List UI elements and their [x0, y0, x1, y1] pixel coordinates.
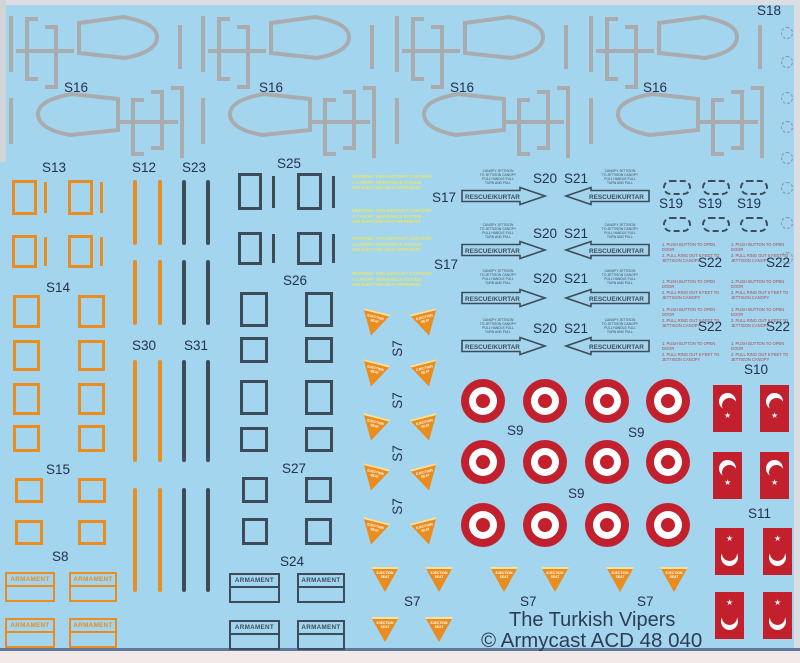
- triangle-text: EJECTIONSEAT: [371, 617, 399, 630]
- s10-label: S10: [744, 362, 768, 377]
- star-icon: ★: [771, 412, 778, 420]
- s13-frame-rect: [68, 235, 93, 268]
- star-icon: ★: [771, 479, 778, 487]
- triangle-text: EJECTIONSEAT: [360, 308, 390, 327]
- armament-box-label: ARMAMENT: [299, 575, 343, 588]
- turkish-flag-s10: ★: [760, 452, 789, 499]
- canopy-instruction-line: 1. PUSH BUTTON TO OPEN DOOR: [662, 307, 720, 318]
- jettison-stencil-block: CANOPY JETTISONTO JETTISON CANOPYPULL HA…: [596, 224, 644, 240]
- s7-label: S7: [637, 594, 654, 609]
- s7-label: S7: [390, 340, 405, 357]
- s25-frame-rect: [297, 173, 322, 210]
- walkway-stripe-dark: [206, 488, 210, 592]
- walkway-stripe-dark: [182, 260, 186, 325]
- canopy-instruction-block: 1. PUSH BUTTON TO OPEN DOOR2. PULL RING …: [662, 242, 720, 263]
- s18-dashed-circle: [781, 182, 793, 194]
- s15-frame-rect: [15, 478, 43, 503]
- roundel-white-ring: [469, 448, 497, 476]
- s18-dashed-circle: [781, 56, 793, 68]
- s15-label: S15: [46, 462, 70, 477]
- s30-label: S30: [132, 338, 156, 353]
- canopy-instruction-line: 1. PUSH BUTTON TO OPEN DOOR: [731, 307, 789, 318]
- walkway-stripe-orange: [158, 180, 162, 245]
- s9-label: S9: [507, 423, 524, 438]
- s7-label: S7: [520, 594, 537, 609]
- canopy-instruction-block: 1. PUSH BUTTON TO OPEN DOOR2. PULL RING …: [662, 279, 720, 300]
- s26-frame-rect: [305, 427, 333, 452]
- s9-label: S9: [568, 486, 585, 501]
- s24-label: S24: [280, 554, 304, 569]
- s26-frame-rect: [240, 380, 268, 415]
- triangle-text: EJECTIONSEAT: [425, 567, 453, 580]
- roundel-white-ring: [531, 448, 559, 476]
- roundel-center-dot: [661, 394, 675, 408]
- armament-box-dark: ARMAMENT: [229, 620, 280, 650]
- seal-bracket: [519, 100, 530, 154]
- triangle-text: EJECTIONSEAT: [371, 567, 399, 580]
- triangle-text: EJECTIONSEAT: [409, 308, 439, 327]
- turkish-flag-s11: ★: [715, 528, 744, 575]
- triangle-text-line: SEAT: [425, 625, 453, 629]
- rescue-arrow-text: RESCUE/KURTAR: [465, 344, 520, 351]
- roundel-white-ring: [593, 511, 621, 539]
- s13-label: S13: [42, 160, 66, 175]
- canopy-outline: [79, 17, 157, 58]
- s25-frame-bar: [332, 176, 335, 208]
- s14-frame-rect: [13, 340, 40, 371]
- canopy-instruction-line: 1. PUSH BUTTON TO OPEN DOOR: [731, 279, 789, 290]
- s14-frame-rect: [78, 340, 105, 371]
- s19-label: S19: [659, 196, 683, 211]
- turkish-roundel: [523, 440, 567, 484]
- ejection-warning-triangle: EJECTIONSEAT: [409, 517, 442, 548]
- roundel-center-dot: [538, 455, 552, 469]
- warning-stencil-line: SEE EJECTION SEAT WARNINGS: [352, 185, 438, 191]
- s14-frame-rect: [78, 295, 105, 328]
- walkway-stripe-orange: [158, 360, 162, 462]
- warning-stencil-line: SEE EJECTION SEAT WARNINGS: [352, 219, 438, 225]
- turkish-roundel: [585, 440, 629, 484]
- s26-frame-rect: [305, 380, 333, 415]
- turkish-flag-s10: ★: [713, 452, 742, 499]
- s19-dashed-oval: [740, 180, 768, 195]
- s15-frame-rect: [78, 520, 106, 545]
- s25-frame-bar: [332, 234, 335, 263]
- canopy-instruction-line: JETTISON CANOPY: [731, 295, 789, 300]
- ejection-warning-triangle: EJECTIONSEAT: [357, 413, 390, 444]
- jettison-stencil-block: CANOPY JETTISONTO JETTISON CANOPYPULL HA…: [474, 270, 522, 286]
- rescue-arrow-right: RESCUE/KURTAR: [461, 336, 547, 356]
- s19-dashed-oval: [702, 217, 730, 232]
- warning-stencil-line: WARNING: THIS AIRCRAFT CONTAINS: [352, 236, 438, 242]
- s13-frame-bar: [44, 182, 47, 213]
- roundel-center-dot: [476, 394, 490, 408]
- s19-dashed-oval: [702, 180, 730, 195]
- warning-stencil-block: WARNING: THIS AIRCRAFT CONTAINSA CANOPY …: [352, 208, 438, 225]
- seal-bracket: [133, 100, 144, 154]
- s27-frame-rect: [242, 477, 268, 503]
- triangle-text-line: SEAT: [490, 575, 518, 579]
- jettison-stencil-line: TURN AND PULL: [474, 236, 522, 240]
- jettison-stencil-line: TURN AND PULL: [596, 236, 644, 240]
- s7-label: S7: [404, 594, 421, 609]
- jettison-stencil-block: CANOPY JETTISONTO JETTISON CANOPYPULL HA…: [474, 224, 522, 240]
- rescue-arrow-text: RESCUE/KURTAR: [589, 248, 644, 255]
- triangle-text: EJECTIONSEAT: [606, 567, 634, 580]
- jettison-stencil-block: CANOPY JETTISONTO JETTISON CANOPYPULL HA…: [474, 319, 522, 335]
- s26-frame-rect: [305, 337, 333, 363]
- canopy-instruction-line: JETTISON CANOPY: [731, 258, 789, 263]
- roundel-white-ring: [469, 387, 497, 415]
- roundel-center-dot: [600, 518, 614, 532]
- canopy-instruction-line: 1. PUSH BUTTON TO OPEN DOOR: [662, 279, 720, 290]
- turkish-roundel: [646, 379, 690, 423]
- s20-label: S20: [533, 271, 557, 286]
- triangle-text: EJECTIONSEAT: [541, 567, 569, 580]
- armament-box-label: ARMAMENT: [7, 620, 53, 633]
- turkish-roundel: [646, 503, 690, 547]
- canopy-frame-group: [588, 6, 773, 158]
- triangle-text: EJECTIONSEAT: [660, 567, 688, 580]
- walkway-stripe-orange: [133, 260, 137, 325]
- roundel-white-ring: [531, 511, 559, 539]
- s18-dashed-circle: [781, 92, 793, 104]
- product-code: © Armycast ACD 48 040: [481, 629, 702, 653]
- warning-stencil-block: WARNING: THIS AIRCRAFT CONTAINSA CANOPY …: [352, 174, 438, 191]
- armament-box-orange: ARMAMENT: [5, 618, 55, 648]
- star-icon: ★: [726, 599, 733, 607]
- triangle-text: EJECTIONSEAT: [409, 517, 439, 536]
- seal-bracket: [713, 100, 724, 154]
- roundel-center-dot: [476, 518, 490, 532]
- turkish-flag-s10: ★: [760, 385, 789, 432]
- turkish-flag-s11: ★: [763, 528, 792, 575]
- triangle-text-line: SEAT: [660, 575, 688, 579]
- jettison-stencil-line: TURN AND PULL: [474, 282, 522, 286]
- s25-frame-rect: [238, 173, 262, 210]
- jettison-stencil-line: TURN AND PULL: [474, 182, 522, 186]
- s7-label: S7: [390, 445, 405, 462]
- s20-label: S20: [533, 171, 557, 186]
- s18-dashed-circle: [781, 217, 793, 229]
- canopy-frame-svg: [8, 6, 193, 158]
- s18-dashed-circle: [781, 121, 793, 133]
- sheet-edge-left: [0, 0, 6, 162]
- s20-label: S20: [533, 321, 557, 336]
- armament-box-orange: ARMAMENT: [69, 618, 117, 648]
- armament-box-label: ARMAMENT: [71, 574, 115, 587]
- seal-bracket: [237, 27, 248, 87]
- armament-box-dark: ARMAMENT: [229, 573, 280, 603]
- s17-label: S17: [434, 257, 458, 272]
- ejection-warning-triangle: EJECTIONSEAT: [409, 413, 442, 444]
- roundel-white-ring: [531, 387, 559, 415]
- s27-label: S27: [282, 461, 306, 476]
- walkway-stripe-dark: [182, 180, 186, 245]
- canopy-instruction-block: 1. PUSH BUTTON TO OPEN DOOR2. PULL RING …: [731, 242, 789, 263]
- walkway-stripe-orange: [158, 260, 162, 325]
- crescent-cut: [722, 610, 737, 625]
- triangle-text: EJECTIONSEAT: [409, 413, 439, 432]
- ejection-warning-triangle: EJECTIONSEAT: [371, 617, 399, 642]
- ejection-warning-triangle: EJECTIONSEAT: [357, 463, 390, 494]
- triangle-text-line: SEAT: [606, 575, 634, 579]
- sheet-edge-right: [794, 0, 800, 663]
- s18-dashed-circle: [781, 27, 793, 39]
- canopy-instruction-block: 1. PUSH BUTTON TO OPEN DOOR2. PULL RING …: [731, 307, 789, 328]
- roundel-white-ring: [654, 511, 682, 539]
- turkish-roundel: [461, 440, 505, 484]
- turkish-flag-s10: ★: [713, 385, 742, 432]
- s25-frame-bar: [272, 234, 275, 263]
- canopy-instruction-block: 1. PUSH BUTTON TO OPEN DOOR2. PULL RING …: [662, 307, 720, 328]
- rescue-arrow-text: RESCUE/KURTAR: [465, 296, 520, 303]
- s11-label: S11: [748, 506, 771, 521]
- canopy-frame-svg: [588, 6, 773, 158]
- s7-label: S7: [390, 392, 405, 409]
- walkway-stripe-dark: [206, 360, 210, 462]
- s9-label: S9: [628, 425, 645, 440]
- armament-box-label: ARMAMENT: [7, 574, 53, 587]
- roundel-center-dot: [538, 518, 552, 532]
- turkish-roundel: [461, 503, 505, 547]
- s19-dashed-oval: [663, 180, 691, 195]
- roundel-white-ring: [593, 448, 621, 476]
- canopy-instruction-line: JETTISON CANOPY: [662, 295, 720, 300]
- s13-frame-rect: [12, 235, 37, 268]
- canopy-instruction-block: 1. PUSH BUTTON TO OPEN DOOR2. PULL RING …: [731, 341, 789, 362]
- s17-label: S17: [432, 190, 456, 205]
- s13-frame-rect: [12, 180, 37, 215]
- crescent-cut: [770, 546, 785, 561]
- triangle-text-line: SEAT: [541, 575, 569, 579]
- turkish-roundel: [523, 503, 567, 547]
- roundel-center-dot: [661, 518, 675, 532]
- armament-box-orange: ARMAMENT: [5, 572, 55, 602]
- rescue-arrow-left: RESCUE/KURTAR: [564, 186, 650, 206]
- canopy-frame-group: [8, 6, 193, 158]
- s13-frame-rect: [68, 180, 93, 215]
- rescue-arrow-text: RESCUE/KURTAR: [589, 194, 644, 201]
- armament-box-dark: ARMAMENT: [297, 620, 345, 650]
- s25-frame-rect: [238, 232, 262, 265]
- s25-frame-rect: [297, 232, 322, 265]
- canopy-instruction-line: 1. PUSH BUTTON TO OPEN DOOR: [662, 341, 720, 352]
- canopy-instruction-block: 1. PUSH BUTTON TO OPEN DOOR2. PULL RING …: [731, 279, 789, 300]
- star-icon: ★: [726, 535, 733, 543]
- triangle-text: EJECTIONSEAT: [409, 463, 439, 482]
- s14-frame-rect: [78, 425, 105, 452]
- warning-stencil-line: SEE EJECTION SEAT WARNINGS: [352, 282, 438, 288]
- canopy-instruction-line: 1. PUSH BUTTON TO OPEN DOOR: [662, 242, 720, 253]
- triangle-text-line: SEAT: [371, 625, 399, 629]
- ejection-warning-triangle: EJECTIONSEAT: [371, 567, 399, 592]
- ejection-warning-triangle: EJECTIONSEAT: [357, 359, 390, 390]
- warning-stencil-block: WARNING: THIS AIRCRAFT CONTAINSA CANOPY …: [352, 236, 438, 253]
- s23-label: S23: [182, 160, 206, 175]
- s20-label: S20: [533, 226, 557, 241]
- armament-box-label: ARMAMENT: [71, 620, 115, 633]
- turkish-flag-s11: ★: [715, 592, 744, 639]
- s21-label: S21: [564, 321, 588, 336]
- crescent-cut: [770, 610, 785, 625]
- canopy-outline: [230, 94, 310, 135]
- turkish-flag-s11: ★: [763, 592, 792, 639]
- rescue-arrow-text: RESCUE/KURTAR: [589, 296, 644, 303]
- s14-frame-rect: [78, 383, 105, 415]
- canopy-instruction-line: JETTISON CANOPY: [662, 357, 720, 362]
- jettison-stencil-block: CANOPY JETTISONTO JETTISON CANOPYPULL HA…: [596, 270, 644, 286]
- s26-frame-rect: [240, 292, 268, 327]
- s25-label: S25: [277, 156, 301, 171]
- jettison-stencil-block: CANOPY JETTISONTO JETTISON CANOPYPULL HA…: [596, 319, 644, 335]
- turkish-roundel: [646, 440, 690, 484]
- roundel-center-dot: [538, 394, 552, 408]
- s27-frame-rect: [242, 518, 268, 545]
- star-icon: ★: [774, 599, 781, 607]
- s27-frame-rect: [305, 518, 332, 545]
- s14-frame-rect: [13, 425, 40, 452]
- triangle-text-line: SEAT: [425, 575, 453, 579]
- canopy-instruction-line: JETTISON CANOPY: [731, 357, 789, 362]
- s19-label: S19: [698, 196, 722, 211]
- jettison-stencil-block: CANOPY JETTISONTO JETTISON CANOPYPULL HA…: [474, 170, 522, 186]
- canopy-frame-svg: [394, 6, 579, 158]
- s14-frame-rect: [13, 383, 40, 415]
- s14-label: S14: [46, 280, 70, 295]
- canopy-frame-group: [200, 6, 385, 158]
- rescue-arrow-text: RESCUE/KURTAR: [589, 344, 644, 351]
- s21-label: S21: [564, 171, 588, 186]
- seal-bracket: [325, 100, 336, 154]
- canopy-instruction-line: JETTISON CANOPY: [731, 323, 789, 328]
- s26-frame-rect: [240, 337, 268, 363]
- seal-bracket: [431, 27, 442, 87]
- star-icon: ★: [774, 535, 781, 543]
- s19-dashed-oval: [663, 217, 691, 232]
- triangle-text: EJECTIONSEAT: [360, 517, 390, 536]
- s7-label: S7: [390, 498, 405, 515]
- walkway-stripe-dark: [206, 180, 210, 245]
- seal-bracket: [625, 27, 636, 87]
- ejection-warning-triangle: EJECTIONSEAT: [425, 617, 453, 642]
- jettison-stencil-line: TURN AND PULL: [474, 331, 522, 335]
- triangle-text: EJECTIONSEAT: [409, 359, 439, 378]
- triangle-text: EJECTIONSEAT: [360, 359, 390, 378]
- crescent-cut: [722, 546, 737, 561]
- roundel-center-dot: [661, 455, 675, 469]
- s18-dashed-circle: [781, 152, 793, 164]
- rescue-arrow-left: RESCUE/KURTAR: [564, 288, 650, 308]
- s15-frame-rect: [78, 478, 106, 503]
- ejection-warning-triangle: EJECTIONSEAT: [541, 567, 569, 592]
- star-icon: ★: [724, 479, 731, 487]
- triangle-text: EJECTIONSEAT: [360, 413, 390, 432]
- armament-box-label: ARMAMENT: [299, 622, 343, 635]
- ejection-warning-triangle: EJECTIONSEAT: [660, 567, 688, 592]
- armament-box-label: ARMAMENT: [231, 575, 278, 588]
- rescue-arrow-right: RESCUE/KURTAR: [461, 240, 547, 260]
- triangle-text: EJECTIONSEAT: [490, 567, 518, 580]
- jettison-stencil-line: TURN AND PULL: [596, 282, 644, 286]
- s26-frame-rect: [240, 427, 268, 452]
- canopy-outline: [659, 17, 737, 58]
- s13-frame-bar: [44, 237, 47, 266]
- s31-label: S31: [184, 338, 208, 353]
- armament-box-label: ARMAMENT: [231, 622, 278, 635]
- turkish-roundel: [461, 379, 505, 423]
- seal-bracket: [45, 27, 56, 87]
- s19-label: S19: [737, 196, 761, 211]
- s26-frame-rect: [305, 292, 333, 327]
- turkish-roundel: [523, 379, 567, 423]
- canopy-instruction-block: 1. PUSH BUTTON TO OPEN DOOR2. PULL RING …: [662, 341, 720, 362]
- walkway-stripe-dark: [182, 488, 186, 592]
- canopy-instruction-line: JETTISON CANOPY: [662, 258, 720, 263]
- roundel-white-ring: [654, 448, 682, 476]
- ejection-warning-triangle: EJECTIONSEAT: [357, 517, 390, 548]
- roundel-center-dot: [600, 455, 614, 469]
- rescue-arrow-text: RESCUE/KURTAR: [465, 248, 520, 255]
- s25-frame-bar: [272, 176, 275, 208]
- turkish-roundel: [585, 503, 629, 547]
- warning-stencil-line: WARNING: THIS AIRCRAFT CONTAINS: [352, 271, 438, 277]
- turkish-roundel: [585, 379, 629, 423]
- canopy-outline: [465, 17, 543, 58]
- warning-stencil-line: WARNING: THIS AIRCRAFT CONTAINS: [352, 208, 438, 214]
- warning-stencil-line: WARNING: THIS AIRCRAFT CONTAINS: [352, 174, 438, 180]
- canopy-instruction-line: 1. PUSH BUTTON TO OPEN DOOR: [731, 242, 789, 253]
- s26-label: S26: [283, 273, 307, 288]
- jettison-stencil-line: TURN AND PULL: [596, 182, 644, 186]
- s27-frame-rect: [305, 477, 332, 503]
- s13-frame-bar: [100, 237, 103, 266]
- jettison-stencil-line: TURN AND PULL: [596, 331, 644, 335]
- canopy-frame-svg: [200, 6, 385, 158]
- canopy-outline: [618, 94, 698, 135]
- roundel-center-dot: [476, 455, 490, 469]
- sheet-edge-top: [0, 0, 800, 5]
- warning-stencil-line: SEE EJECTION SEAT WARNINGS: [352, 247, 438, 253]
- triangle-text: EJECTIONSEAT: [360, 463, 390, 482]
- warning-stencil-block: WARNING: THIS AIRCRAFT CONTAINSA CANOPY …: [352, 271, 438, 288]
- s12-label: S12: [132, 160, 156, 175]
- armament-box-orange: ARMAMENT: [69, 572, 117, 602]
- canopy-outline: [38, 94, 118, 135]
- ejection-warning-triangle: EJECTIONSEAT: [490, 567, 518, 592]
- canopy-outline: [424, 94, 504, 135]
- walkway-stripe-dark: [182, 360, 186, 462]
- walkway-stripe-orange: [133, 488, 137, 592]
- s21-label: S21: [564, 271, 588, 286]
- triangle-text: EJECTIONSEAT: [425, 617, 453, 630]
- ejection-warning-triangle: EJECTIONSEAT: [606, 567, 634, 592]
- ejection-warning-triangle: EJECTIONSEAT: [409, 463, 442, 494]
- canopy-frame-group: [394, 6, 579, 158]
- roundel-center-dot: [600, 394, 614, 408]
- armament-box-dark: ARMAMENT: [297, 573, 345, 603]
- walkway-stripe-dark: [206, 260, 210, 325]
- jettison-stencil-block: CANOPY JETTISONTO JETTISON CANOPYPULL HA…: [596, 170, 644, 186]
- rescue-arrow-text: RESCUE/KURTAR: [465, 194, 520, 201]
- rescue-arrow-right: RESCUE/KURTAR: [461, 288, 547, 308]
- s14-frame-rect: [13, 295, 40, 328]
- roundel-white-ring: [654, 387, 682, 415]
- ejection-warning-triangle: EJECTIONSEAT: [357, 308, 390, 339]
- rescue-arrow-left: RESCUE/KURTAR: [564, 240, 650, 260]
- canopy-outline: [271, 17, 349, 58]
- s15-frame-rect: [15, 520, 43, 545]
